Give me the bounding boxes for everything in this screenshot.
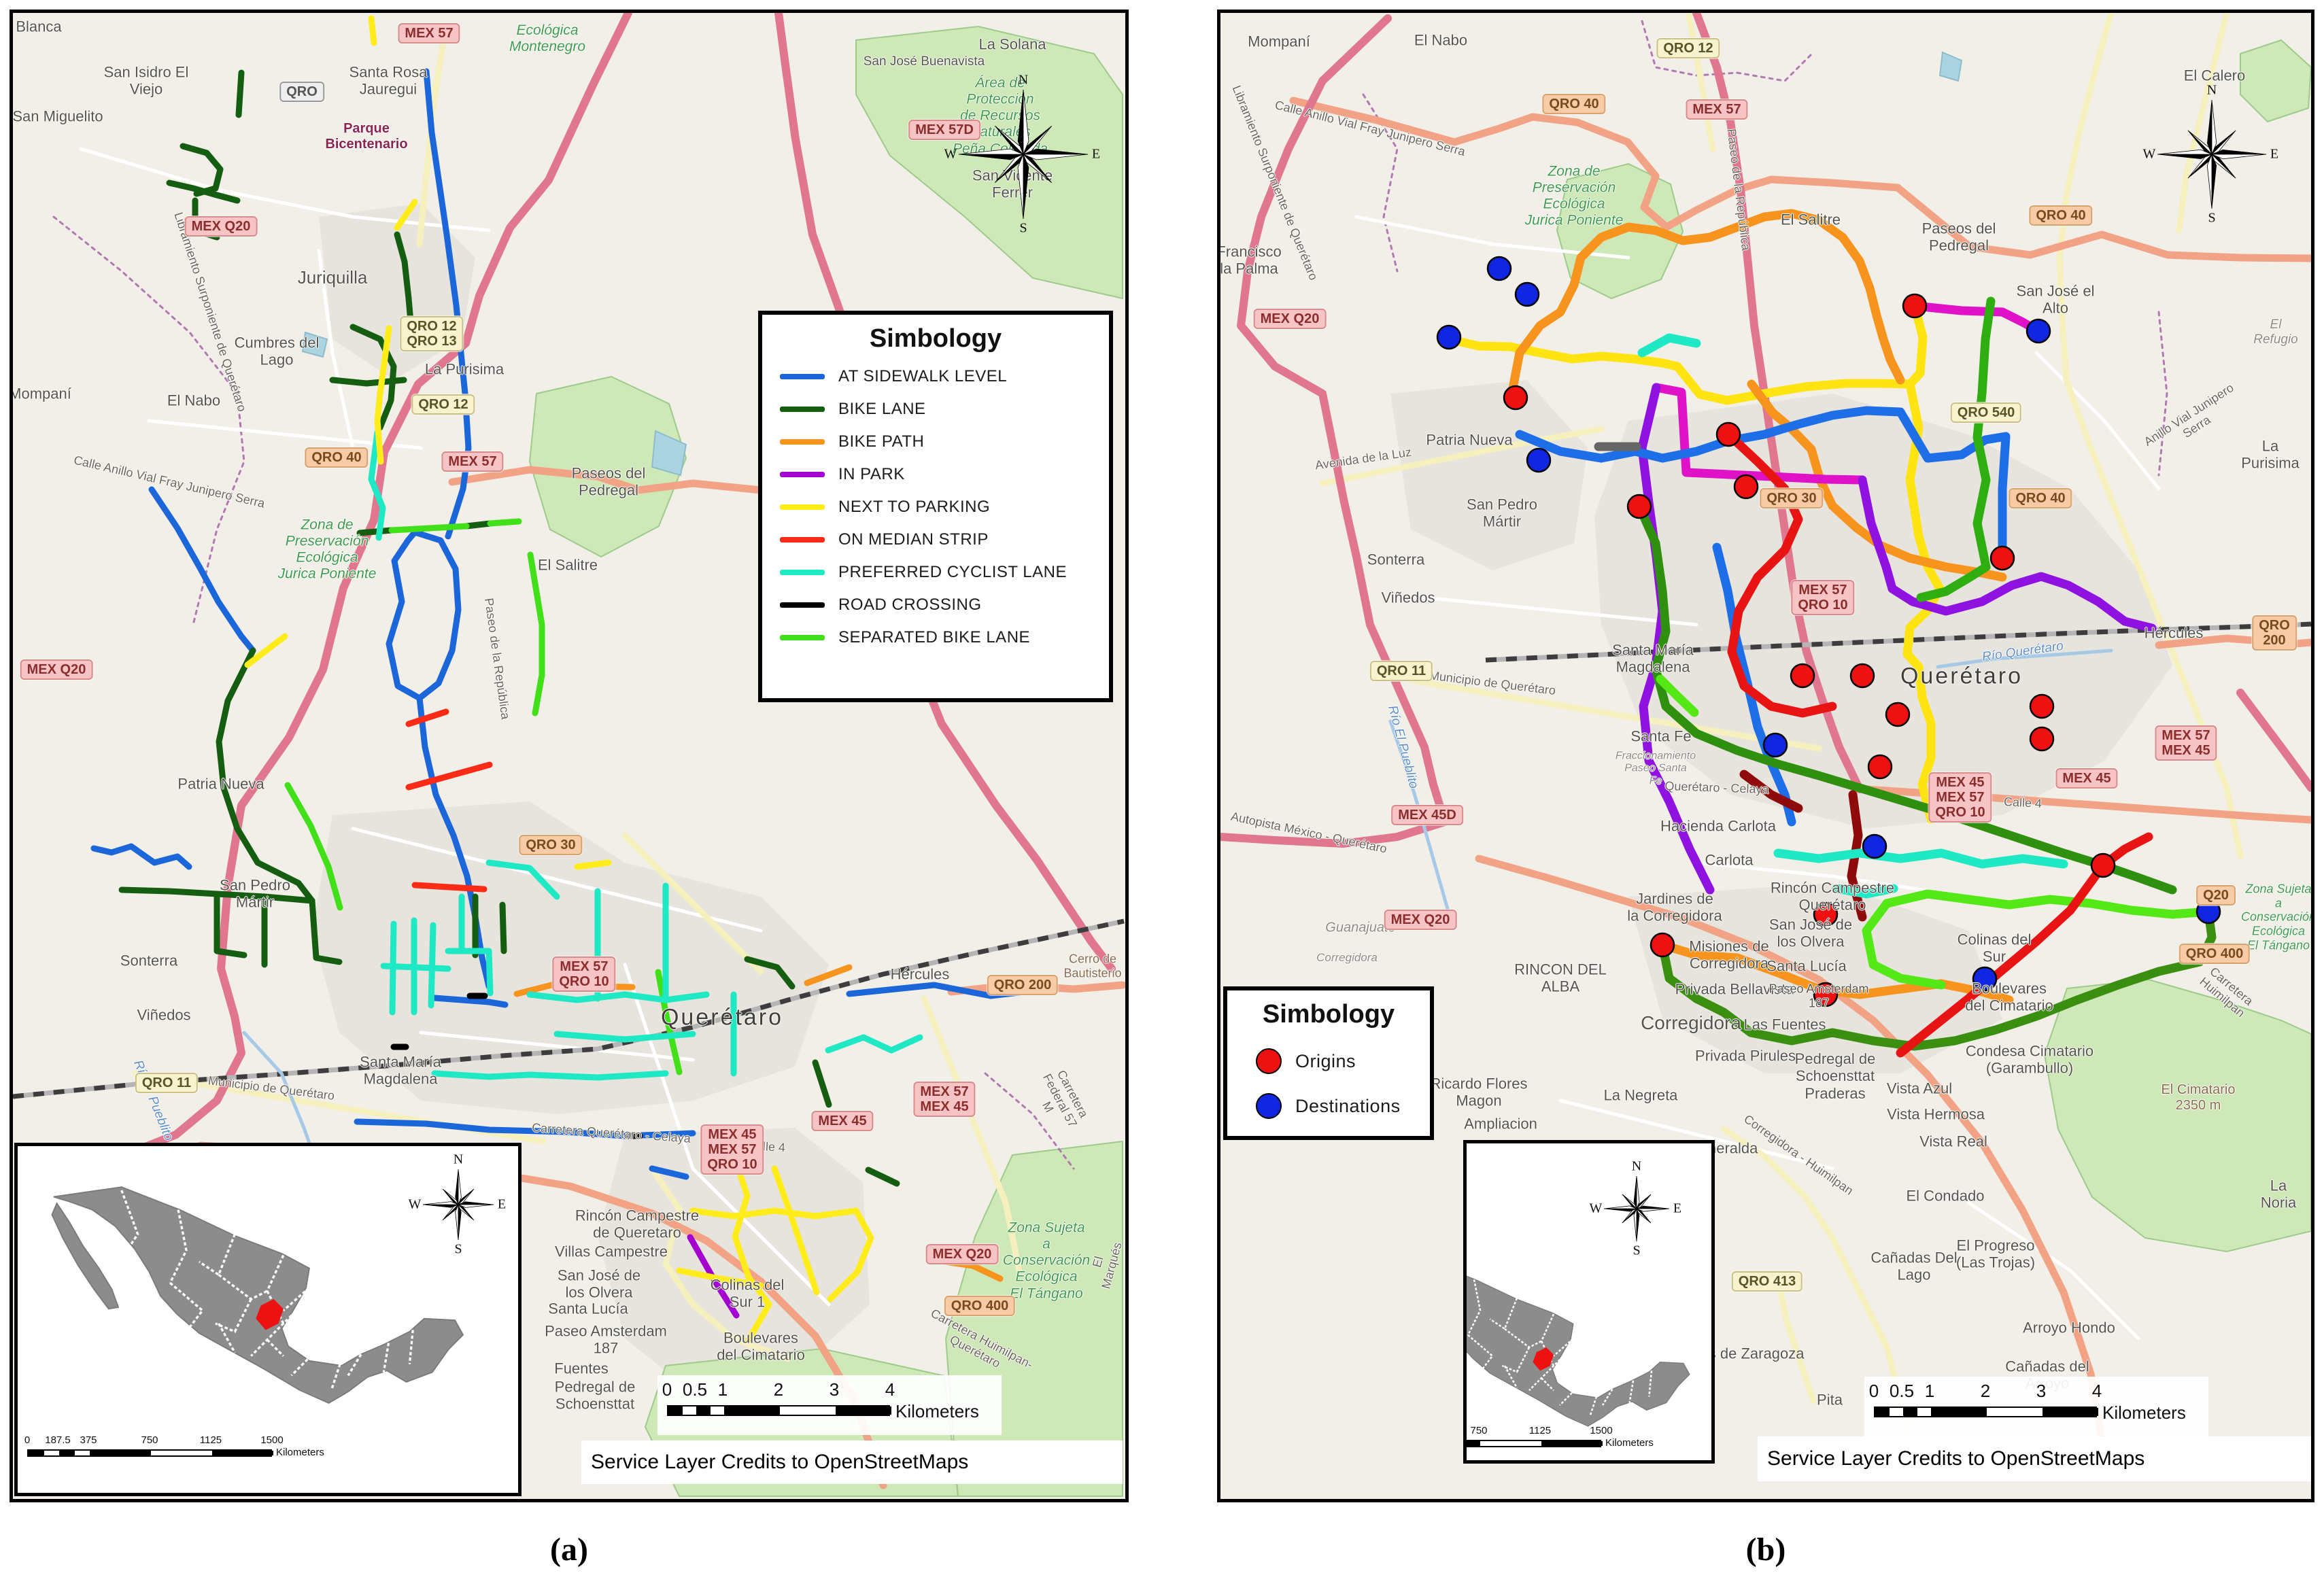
route-shield: QRO 200: [2252, 615, 2297, 651]
inset-scale-tick: 750: [1470, 1425, 1487, 1436]
origin-dot: [1868, 755, 1892, 778]
route-shield-text: MEX 57: [1935, 790, 1985, 805]
bike-route-bike-lane: [360, 530, 392, 533]
route-shield-text: QRO 400: [951, 1298, 1008, 1313]
route-shield-text: QRO 10: [1935, 805, 1985, 820]
destination-dot: [1764, 733, 1787, 757]
inset-scale-tick: 1125: [200, 1434, 222, 1446]
legend-item: ON MEDIAN STRIP: [780, 530, 1109, 549]
origin-dot: [1628, 495, 1651, 518]
legend-item-label: ON MEDIAN STRIP: [838, 530, 989, 549]
route-shield: MEX Q20: [1384, 910, 1457, 930]
caption-b: (b): [1746, 1531, 1786, 1568]
compass-rose: NSWE: [944, 75, 1103, 234]
water-area: [652, 431, 686, 475]
route-shield-text: MEX Q20: [933, 1247, 992, 1262]
service-credits: Service Layer Credits to OpenStreetMaps: [1758, 1436, 2311, 1481]
route-shield-text: QRO 40: [2036, 208, 2085, 223]
trip-route: [1887, 894, 2208, 914]
legend-item: IN PARK: [780, 465, 1109, 484]
bike-route-on-median-strip: [409, 712, 446, 724]
legend-line-swatch: [780, 374, 825, 379]
legend-line-swatch: [780, 570, 825, 575]
route-shield: QRO 30: [519, 835, 582, 855]
scale-tick: 0.5: [1890, 1381, 1914, 1402]
bike-route-at-sidewalk-level: [152, 489, 253, 651]
route-shield: QRO 11: [135, 1073, 198, 1093]
route-shield-text: QRO 12: [418, 397, 468, 412]
route-shield: QRO 11: [1370, 661, 1433, 681]
inset-compass-rose: NSWE: [1589, 1161, 1684, 1256]
bike-route-preferred-cyclist-lane: [828, 1037, 920, 1050]
origin-dot: [2030, 695, 2053, 718]
scale-tick: 4: [2092, 1381, 2102, 1402]
scale-tick: 4: [885, 1379, 895, 1400]
route-shield: QRO 12: [1656, 38, 1720, 58]
compass-letter-s: S: [2208, 211, 2215, 226]
legend-item-label: AT SIDEWALK LEVEL: [838, 367, 1007, 386]
legend: SimbologyOriginsDestinations: [1223, 986, 1434, 1140]
legend-item-label: ROAD CROSSING: [838, 595, 982, 615]
route-shield-text: MEX 57: [1692, 102, 1741, 117]
bike-route-next-to-parking: [577, 863, 609, 867]
compass-letter-w: W: [409, 1197, 422, 1213]
route-shield-text: QRO 12: [1663, 41, 1713, 56]
route-shield: MEX Q20: [185, 216, 258, 237]
legend-item: BIKE PATH: [780, 432, 1109, 451]
scale-tick: 1: [718, 1379, 728, 1400]
mexico-inset: NSWE0187.537575011251500Kilometers: [14, 1143, 522, 1496]
legend-line-swatch: [780, 504, 825, 510]
caption-a: (a): [550, 1531, 588, 1568]
destination-dot: [1437, 326, 1460, 349]
route-shield: MEX 45: [811, 1111, 873, 1131]
bike-route-bike-lane: [239, 73, 241, 115]
inset-scale-tick: 1500: [1590, 1425, 1612, 1436]
inset-scale-bar: [27, 1449, 272, 1457]
scale-tick: 0: [1869, 1381, 1879, 1402]
legend-item: Origins: [1245, 1048, 1430, 1074]
legend-line-swatch: [780, 472, 825, 477]
destination-dot: [1516, 283, 1539, 306]
bike-route-bike-lane: [466, 523, 490, 526]
legend-item: AT SIDEWALK LEVEL: [780, 367, 1109, 386]
compass-letter-e: E: [498, 1197, 506, 1213]
route-shield-text: QRO 11: [142, 1075, 191, 1090]
trip-route: [1836, 888, 1894, 894]
bike-route-bike-lane: [332, 380, 404, 383]
route-shield-text: MEX 57: [405, 26, 453, 41]
route-shield: MEX 57MEX 45: [913, 1082, 975, 1117]
route-shield-text: MEX 45: [1935, 775, 1985, 790]
legend-item-label: BIKE PATH: [838, 432, 924, 451]
legend-item: Destinations: [1245, 1093, 1430, 1119]
route-shield-text: MEX Q20: [192, 219, 251, 234]
route-shield: QRO 540: [1951, 402, 2021, 423]
legend-item: BIKE LANE: [780, 400, 1109, 419]
route-shield-text: MEX 45: [2161, 743, 2210, 758]
legend-item-label: Destinations: [1295, 1096, 1401, 1117]
origin-dot: [1814, 983, 1837, 1006]
inset-scale-tick: 375: [80, 1434, 97, 1446]
bike-route-at-sidewalk-level: [357, 1122, 693, 1136]
admin-boundary: [2159, 312, 2167, 475]
route-shield-text: QRO 30: [1766, 491, 1816, 506]
route-shield: QRO 200: [987, 975, 1058, 995]
route-shield-text: MEX 57: [448, 454, 496, 469]
route-shield: QRO 12QRO 13: [400, 316, 463, 351]
compass-letter-e: E: [1673, 1201, 1681, 1217]
scale-tick: 2: [774, 1379, 783, 1400]
route-shield-text: QRO 540: [1958, 405, 2015, 420]
legend-item-label: IN PARK: [838, 465, 905, 484]
route-shield: Q20: [2196, 885, 2236, 905]
legend-item-label: SEPARATED BIKE LANE: [838, 628, 1030, 647]
inset-scale-tick: 0: [24, 1434, 30, 1446]
route-shield: MEX 57: [1686, 99, 1747, 120]
route-shield-text: QRO 40: [1549, 97, 1599, 111]
secondary-road: [1778, 1279, 1813, 1401]
scale-tick: 2: [1981, 1381, 1990, 1402]
route-shield: QRO 40: [2029, 205, 2092, 226]
route-shield: QRO 12: [411, 394, 475, 415]
route-shield: QRO 30: [1760, 488, 1823, 508]
compass-letter-w: W: [944, 147, 957, 162]
bike-route-separated-bike-lane: [530, 555, 542, 713]
route-shield: MEX 45D: [1391, 805, 1463, 825]
scale-bar: 00.51234Kilometers: [657, 1375, 1002, 1435]
route-shield: MEX 57: [398, 23, 460, 44]
route-shield: MEX Q20: [926, 1244, 999, 1264]
route-shield-text: QRO 40: [2015, 491, 2065, 506]
destination-dot: [1973, 967, 1996, 990]
route-shield-text: QRO 30: [526, 838, 575, 852]
inset-compass-rose: NSWE: [408, 1154, 509, 1255]
mexico-country: [1463, 1262, 1690, 1426]
route-shield-text: MEX Q20: [27, 662, 86, 677]
route-shield: MEX 45MEX 57QRO 10: [1928, 772, 1992, 823]
route-shield-text: MEX 45: [920, 1099, 968, 1114]
scale-bar: 00.51234Kilometers: [1864, 1377, 2208, 1436]
scale-tick: 3: [830, 1379, 839, 1400]
route-shield-text: MEX Q20: [1261, 311, 1320, 326]
route-shield: QRO 400: [944, 1296, 1015, 1316]
compass-letter-n: N: [454, 1152, 463, 1168]
destination-dot: [2027, 320, 2050, 343]
scale-unit: Kilometers: [2102, 1402, 2186, 1423]
route-shield: MEX 45: [2055, 768, 2117, 789]
route-shield-text: MEX 57: [2161, 728, 2210, 743]
legend-item-label: BIKE LANE: [838, 400, 926, 419]
compass-letter-n: N: [2207, 83, 2217, 99]
legend-item-label: NEXT TO PARKING: [838, 498, 990, 517]
route-shield-text: QRO 413: [1739, 1274, 1796, 1289]
inset-scale-unit: Kilometers: [1605, 1437, 1654, 1449]
inset-scale-tick: 1125: [1529, 1425, 1551, 1436]
bike-route-at-sidewalk-level: [94, 846, 189, 867]
route-shield-text: QRO 400: [2186, 946, 2243, 961]
route-shield-text: MEX 57: [559, 959, 609, 974]
route-shield-text: QRO 12: [407, 319, 456, 334]
compass-letter-w: W: [2143, 147, 2156, 162]
bike-route-separated-bike-lane: [490, 521, 519, 523]
origin-dot: [1903, 294, 1926, 317]
route-shield-text: QRO 11: [1377, 663, 1426, 678]
legend-dot-swatch: [1256, 1048, 1282, 1074]
route-shield: QRO 40: [2009, 488, 2072, 508]
legend: SimbologyAT SIDEWALK LEVELBIKE LANEBIKE …: [758, 311, 1113, 702]
trip-route: [1915, 306, 2038, 331]
inset-scale-tick: 187.5: [45, 1434, 71, 1446]
destination-dot: [1863, 835, 1886, 858]
route-shield: QRO 40: [1542, 94, 1605, 114]
inset-scale-unit: Kilometers: [276, 1447, 324, 1458]
legend-line-swatch: [780, 602, 825, 608]
route-shield: QRO: [279, 82, 324, 102]
origin-dot: [1991, 547, 2014, 570]
map-panel-b: MompaníEl NaboEl CaleroFrancisco la Palm…: [1217, 10, 2314, 1502]
compass-letter-w: W: [1590, 1201, 1603, 1217]
compass-letter-n: N: [1632, 1159, 1641, 1175]
route-shield: MEX 45MEX 57QRO 10: [700, 1124, 764, 1175]
water-area: [1940, 52, 1962, 81]
scale-bar-strip: [667, 1405, 890, 1416]
legend-line-swatch: [780, 635, 825, 640]
legend-item: ROAD CROSSING: [780, 595, 1109, 615]
route-shield-text: MEX 57: [1798, 583, 1847, 598]
legend-line-swatch: [780, 537, 825, 542]
scale-tick: 0: [662, 1379, 672, 1400]
route-shield-text: MEX 45D: [1398, 808, 1456, 823]
route-shield-text: QRO 10: [1798, 598, 1847, 612]
route-shield-text: QRO 10: [707, 1157, 757, 1172]
inset-scale-tick: 750: [141, 1434, 158, 1446]
legend-item-label: PREFERRED CYCLIST LANE: [838, 563, 1067, 582]
scale-tick: 0.5: [683, 1379, 707, 1400]
origin-dot: [1651, 933, 1674, 956]
compass-rose: NSWE: [2142, 85, 2281, 224]
mexico-inset: NSWE0187.537575011251500Kilometers: [1463, 1140, 1715, 1464]
scale-tick: 1: [1925, 1381, 1934, 1402]
origin-dot: [1851, 664, 1874, 687]
scale-unit: Kilometers: [895, 1401, 979, 1422]
origin-dot: [1735, 475, 1758, 498]
mexico-country: [54, 1187, 463, 1403]
inset-scale-bar: [1463, 1440, 1601, 1447]
route-shield: MEX 57: [441, 451, 503, 472]
compass-letter-s: S: [454, 1242, 462, 1258]
route-shield-text: MEX 45: [818, 1114, 866, 1128]
compass-letter-n: N: [1019, 73, 1028, 88]
origin-dot: [1504, 386, 1527, 409]
legend-item: SEPARATED BIKE LANE: [780, 628, 1109, 647]
motorway-road: [2240, 693, 2311, 788]
route-shield-text: MEX 57: [707, 1142, 757, 1157]
scale-tick: 3: [2036, 1381, 2046, 1402]
compass-letter-s: S: [1633, 1243, 1640, 1259]
legend-line-swatch: [780, 439, 825, 445]
bike-route-bike-lane: [868, 1170, 897, 1184]
route-shield-text: QRO 40: [311, 450, 361, 465]
figure-bike-network-maps: BlancaSan Isidro El ViejoSan MiguelitoSa…: [0, 0, 2324, 1588]
origin-dot: [2030, 727, 2053, 750]
bike-route-preferred-cyclist-lane: [383, 966, 448, 969]
destination-dot: [1527, 449, 1550, 472]
legend-line-swatch: [780, 407, 825, 412]
bike-route-at-sidewalk-level: [389, 532, 458, 698]
route-shield: MEX Q20: [1254, 309, 1327, 329]
bike-route-bike-lane: [502, 905, 504, 951]
inset-scale-tick: 1500: [260, 1434, 283, 1446]
bike-route-on-median-strip: [415, 885, 484, 889]
bike-route-bike-lane: [815, 1063, 829, 1105]
destination-dot: [1488, 257, 1511, 280]
scale-bar-strip: [1874, 1406, 2097, 1417]
legend-item-label: Origins: [1295, 1051, 1356, 1072]
route-shield: MEX Q20: [20, 659, 93, 680]
route-shield: QRO 400: [2179, 944, 2250, 964]
route-shield-text: MEX 45: [707, 1127, 757, 1142]
legend-item: NEXT TO PARKING: [780, 498, 1109, 517]
route-shield: MEX 57QRO 10: [552, 956, 615, 992]
map-panel-a: BlancaSan Isidro El ViejoSan MiguelitoSa…: [10, 10, 1129, 1502]
bike-route-preferred-cyclist-lane: [434, 1073, 530, 1077]
route-shield-text: QRO 200: [2259, 618, 2290, 648]
route-shield-text: MEX Q20: [1391, 912, 1450, 927]
service-credits: Service Layer Credits to OpenStreetMaps: [581, 1440, 1123, 1484]
origin-dot: [1886, 703, 1909, 726]
bike-route-next-to-parking: [371, 18, 374, 43]
bike-route-on-median-strip: [409, 765, 490, 787]
trip-route: [1642, 338, 1696, 353]
origin-dot: [1717, 423, 1740, 446]
route-shield-text: Q20: [2203, 888, 2229, 903]
legend-title: Simbology: [762, 324, 1109, 353]
route-shield: QRO 413: [1732, 1271, 1802, 1292]
route-shield-text: QRO 200: [994, 978, 1051, 992]
legend-dot-swatch: [1256, 1093, 1282, 1119]
green-area: [2045, 980, 2311, 1252]
legend-title: Simbology: [1227, 1000, 1430, 1029]
compass-letter-e: E: [2270, 147, 2278, 162]
route-shield: MEX 57MEX 45: [2155, 725, 2217, 761]
route-shield: QRO 40: [305, 447, 368, 468]
compass-letter-s: S: [1019, 221, 1027, 237]
origin-dot: [2091, 854, 2115, 877]
urban-area: [1390, 380, 1588, 570]
route-shield: MEX 57QRO 10: [1791, 580, 1854, 615]
compass-letter-e: E: [1092, 147, 1100, 162]
route-shield-text: MEX 57: [920, 1084, 968, 1099]
route-shield-text: QRO: [286, 84, 318, 99]
origin-dot: [1791, 664, 1814, 687]
route-shield-text: QRO 10: [559, 974, 609, 989]
water-area: [303, 332, 327, 357]
route-shield-text: MEX 45: [2062, 771, 2111, 786]
legend-item: PREFERRED CYCLIST LANE: [780, 563, 1109, 582]
trip-route: [1778, 853, 2064, 864]
origin-dot: [1814, 903, 1837, 926]
bike-route-separated-bike-lane: [392, 526, 466, 530]
route-shield-text: QRO 13: [407, 334, 456, 349]
